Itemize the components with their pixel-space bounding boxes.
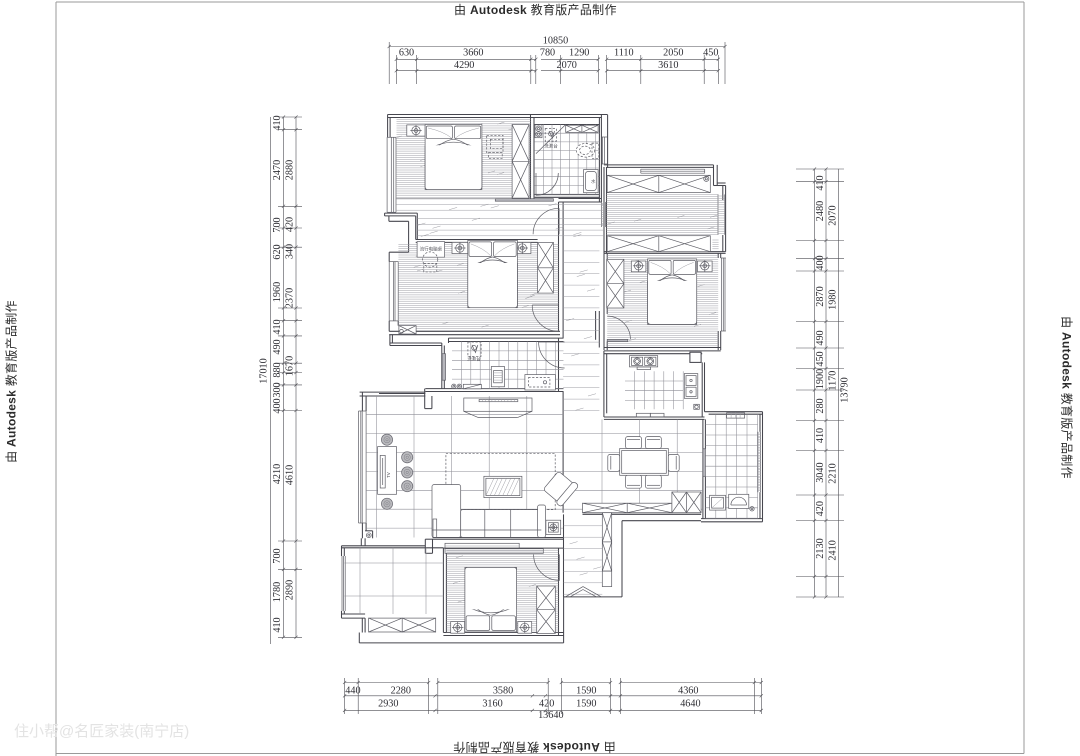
svg-text:2130: 2130 xyxy=(815,538,826,558)
svg-text:3580: 3580 xyxy=(493,685,513,696)
svg-text:280: 280 xyxy=(815,398,826,413)
svg-text:水: 水 xyxy=(591,178,596,184)
svg-text:2410: 2410 xyxy=(827,540,838,560)
svg-text:780: 780 xyxy=(540,48,555,59)
svg-text:4610: 4610 xyxy=(284,465,295,485)
svg-text:880: 880 xyxy=(272,362,283,377)
svg-text:1110: 1110 xyxy=(614,48,634,59)
svg-text:410: 410 xyxy=(815,175,826,190)
svg-text:2070: 2070 xyxy=(557,60,577,71)
svg-text:410: 410 xyxy=(272,617,283,632)
svg-text:420: 420 xyxy=(815,501,826,516)
svg-text:1170: 1170 xyxy=(827,371,838,391)
svg-text:3160: 3160 xyxy=(482,699,502,710)
svg-text:1590: 1590 xyxy=(576,685,596,696)
svg-text:3660: 3660 xyxy=(463,48,483,59)
svg-text:700: 700 xyxy=(272,548,283,563)
svg-text:410: 410 xyxy=(272,319,283,334)
svg-text:2280: 2280 xyxy=(391,685,411,696)
svg-text:1780: 1780 xyxy=(272,582,283,602)
svg-text:340: 340 xyxy=(284,244,295,259)
svg-text:620: 620 xyxy=(272,244,283,259)
svg-text:450: 450 xyxy=(815,351,826,366)
svg-text:700: 700 xyxy=(272,217,283,232)
svg-text:1590: 1590 xyxy=(576,699,596,710)
svg-text:400: 400 xyxy=(272,398,283,413)
svg-text:3040: 3040 xyxy=(815,462,826,482)
svg-text:17010: 17010 xyxy=(258,358,269,383)
svg-text:400: 400 xyxy=(815,255,826,270)
svg-text:3610: 3610 xyxy=(658,60,678,71)
svg-text:1670: 1670 xyxy=(284,356,295,376)
svg-text:490: 490 xyxy=(272,339,283,354)
svg-text:630: 630 xyxy=(399,48,414,59)
svg-text:2470: 2470 xyxy=(272,160,283,180)
svg-text:490: 490 xyxy=(815,330,826,345)
svg-text:13640: 13640 xyxy=(538,710,563,721)
svg-text:2890: 2890 xyxy=(284,580,295,600)
svg-text:2050: 2050 xyxy=(663,48,683,59)
svg-text:流行电脑桌: 流行电脑桌 xyxy=(420,246,443,253)
svg-text:410: 410 xyxy=(272,115,283,130)
svg-text:4290: 4290 xyxy=(454,60,474,71)
svg-text:4360: 4360 xyxy=(678,685,698,696)
svg-text:1960: 1960 xyxy=(272,282,283,302)
svg-text:2210: 2210 xyxy=(827,463,838,483)
svg-text:10850: 10850 xyxy=(543,36,568,47)
svg-text:1980: 1980 xyxy=(827,290,838,310)
svg-text:2870: 2870 xyxy=(815,286,826,306)
svg-text:TV: TV xyxy=(386,472,391,478)
svg-text:4210: 4210 xyxy=(272,464,283,484)
svg-text:2070: 2070 xyxy=(827,205,838,225)
svg-text:410: 410 xyxy=(815,428,826,443)
svg-text:4640: 4640 xyxy=(680,699,700,710)
svg-text:1290: 1290 xyxy=(569,48,589,59)
svg-text:2880: 2880 xyxy=(284,160,295,180)
svg-text:420: 420 xyxy=(539,699,554,710)
svg-text:420: 420 xyxy=(284,217,295,232)
svg-text:1900: 1900 xyxy=(815,369,826,389)
svg-text:洗漱台: 洗漱台 xyxy=(467,356,481,363)
svg-text:2480: 2480 xyxy=(815,201,826,221)
svg-text:2930: 2930 xyxy=(378,699,398,710)
svg-text:2370: 2370 xyxy=(284,288,295,308)
svg-text:450: 450 xyxy=(703,48,718,59)
